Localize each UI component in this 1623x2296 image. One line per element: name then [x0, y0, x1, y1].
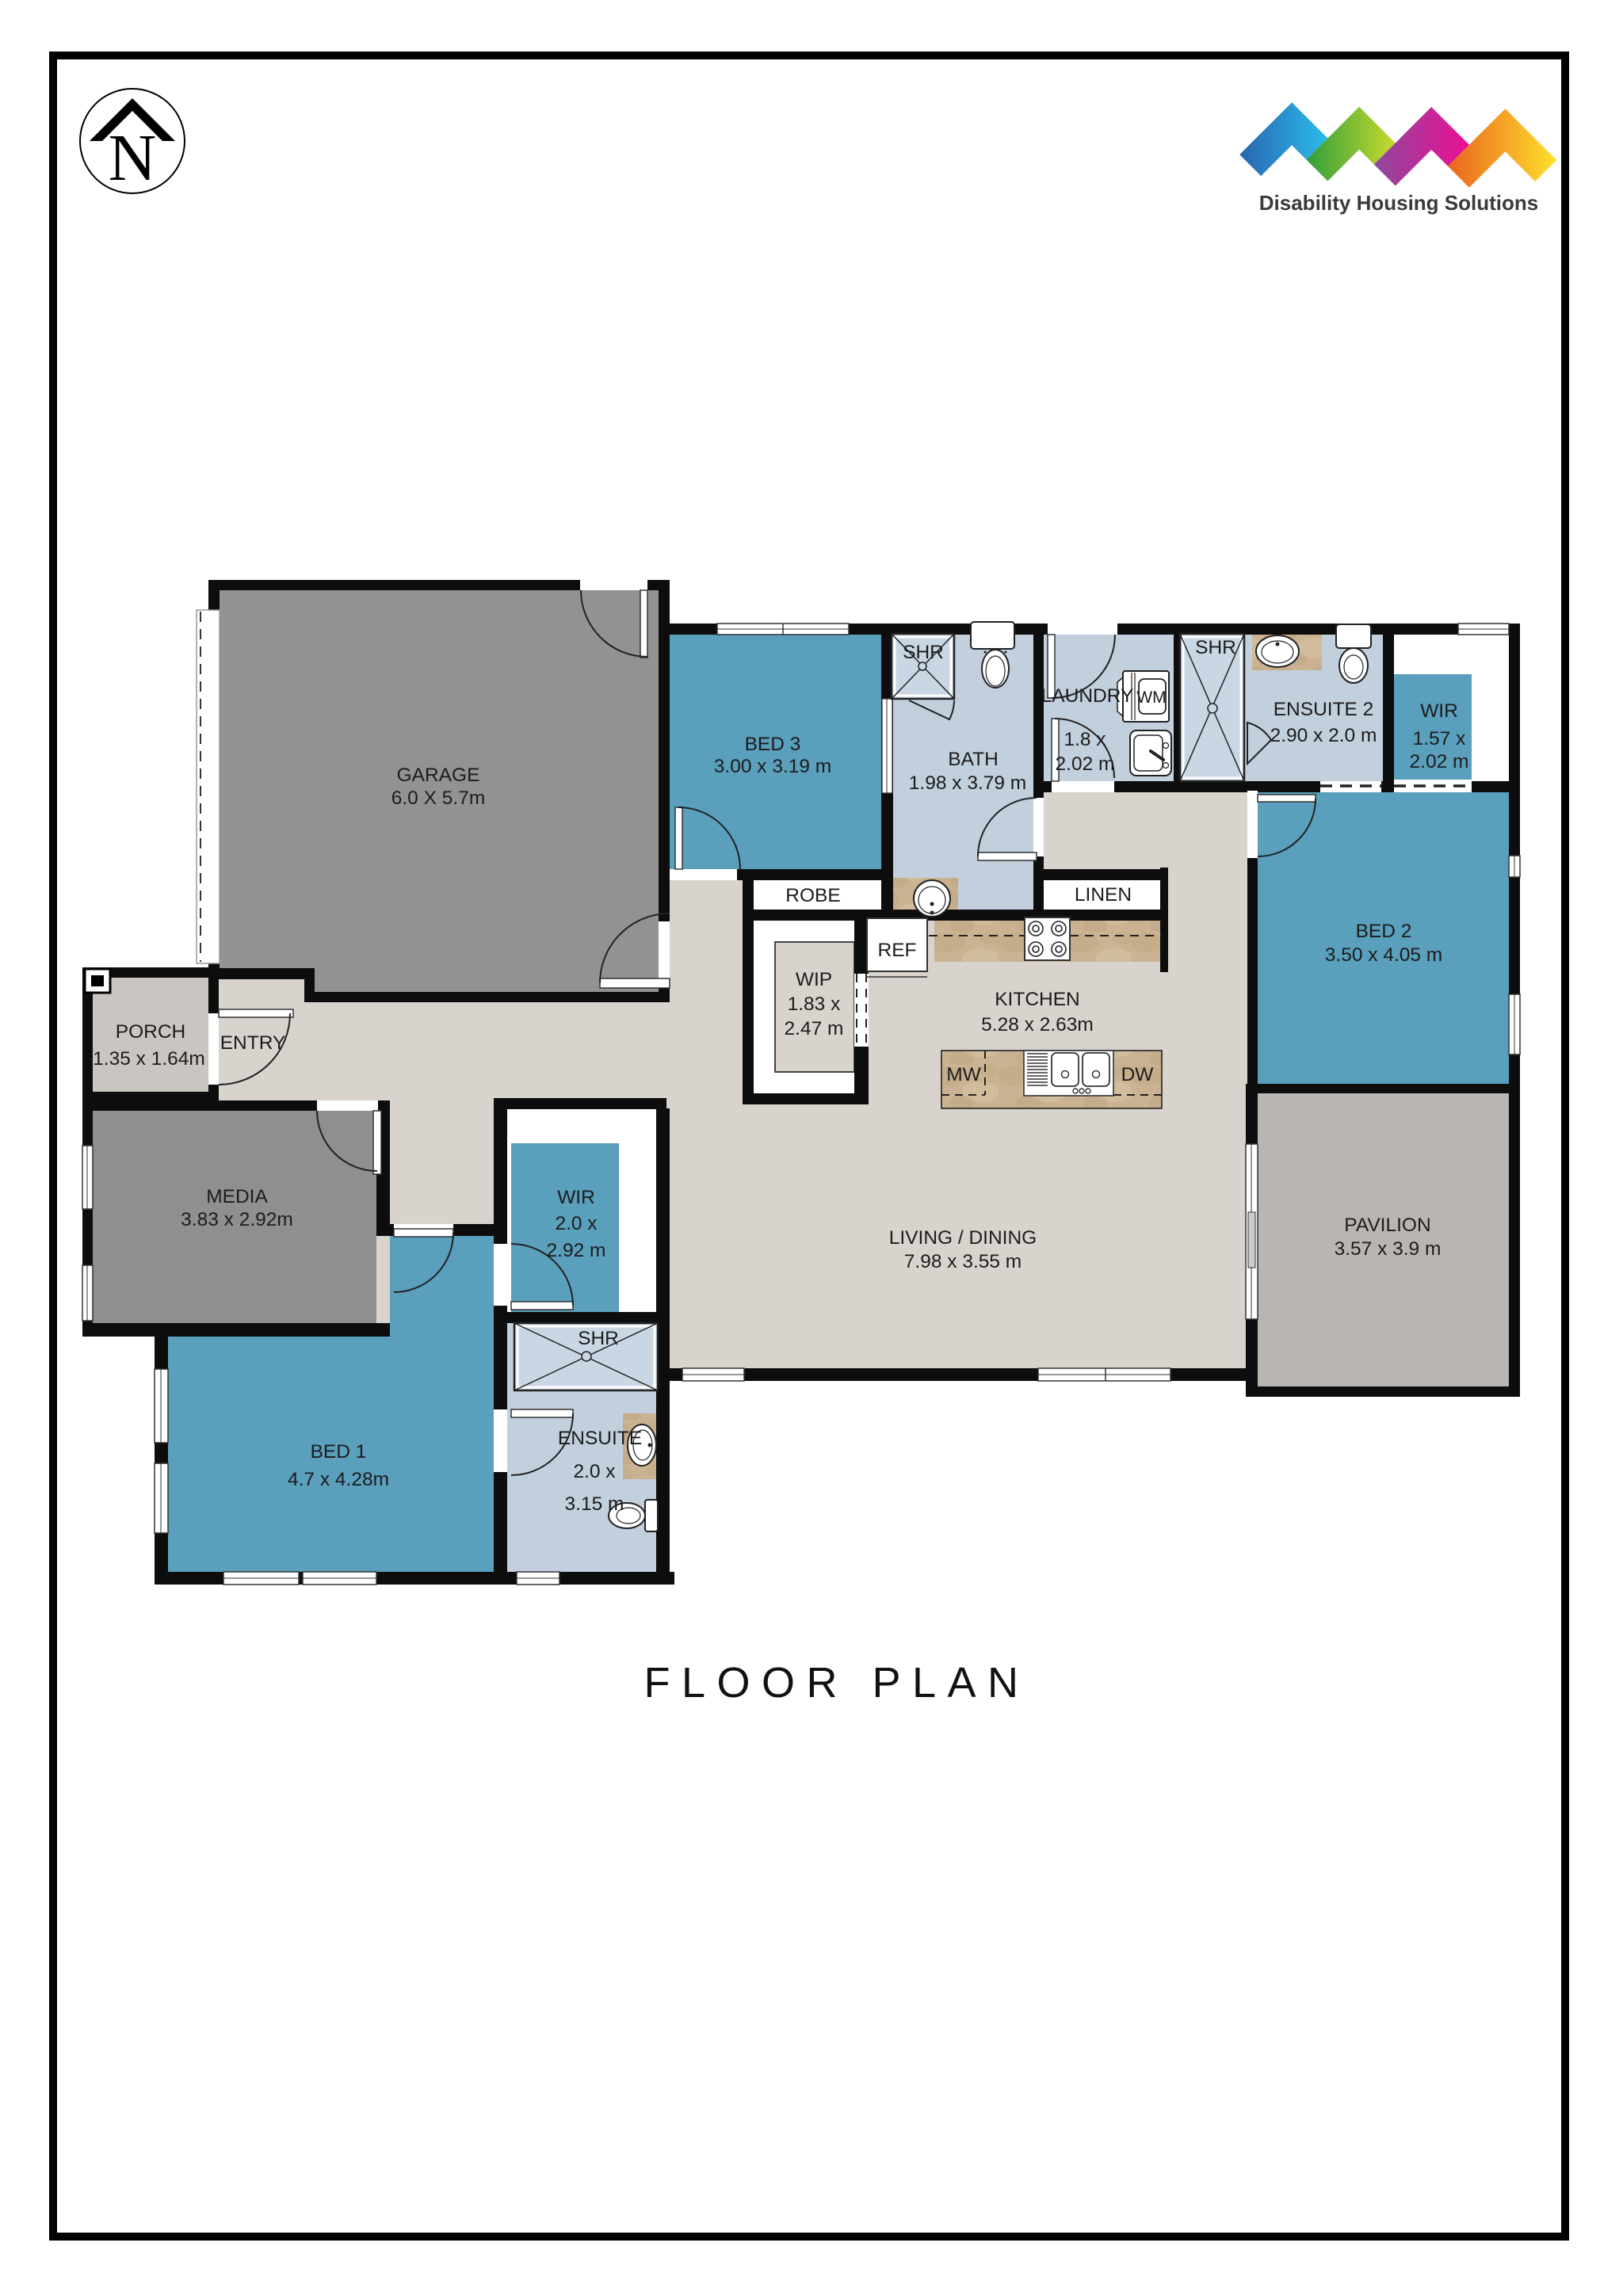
svg-text:BED 1: BED 1: [311, 1441, 367, 1463]
svg-text:2.90 x 2.0 m: 2.90 x 2.0 m: [1270, 725, 1377, 746]
svg-text:3.00 x 3.19 m: 3.00 x 3.19 m: [714, 756, 831, 777]
svg-text:N: N: [109, 121, 157, 195]
svg-text:KITCHEN: KITCHEN: [995, 989, 1080, 1010]
svg-text:SHR: SHR: [1195, 637, 1236, 658]
svg-text:WM: WM: [1136, 688, 1166, 707]
svg-text:7.98 x 3.55 m: 7.98 x 3.55 m: [904, 1251, 1022, 1272]
svg-text:BED 2: BED 2: [1356, 921, 1412, 942]
svg-text:Disability Housing Solutions: Disability Housing Solutions: [1259, 191, 1538, 215]
svg-text:1.35 x 1.64m: 1.35 x 1.64m: [93, 1048, 205, 1070]
svg-text:2.92 m: 2.92 m: [547, 1240, 606, 1261]
svg-text:1.83 x: 1.83 x: [788, 994, 841, 1015]
svg-text:SHR: SHR: [578, 1328, 619, 1349]
svg-text:5.28 x 2.63m: 5.28 x 2.63m: [981, 1014, 1094, 1035]
svg-text:BED 3: BED 3: [745, 734, 801, 755]
svg-text:3.15 m: 3.15 m: [565, 1493, 624, 1515]
svg-text:LIVING / DINING: LIVING / DINING: [889, 1227, 1037, 1249]
svg-text:DW: DW: [1121, 1064, 1155, 1085]
svg-text:FLOOR PLAN: FLOOR PLAN: [643, 1659, 1029, 1707]
svg-text:WIR: WIR: [1420, 700, 1458, 722]
svg-text:4.7 x 4.28m: 4.7 x 4.28m: [288, 1469, 389, 1490]
svg-text:6.0 X 5.7m: 6.0 X 5.7m: [391, 788, 485, 809]
svg-text:2.0 x: 2.0 x: [555, 1213, 597, 1234]
svg-text:SHR: SHR: [903, 642, 944, 663]
svg-text:3.50 x 4.05 m: 3.50 x 4.05 m: [1325, 944, 1442, 966]
svg-text:3.83 x 2.92m: 3.83 x 2.92m: [181, 1209, 293, 1230]
svg-text:2.02 m: 2.02 m: [1410, 751, 1469, 772]
svg-text:BATH: BATH: [948, 749, 999, 770]
svg-text:2.47 m: 2.47 m: [785, 1018, 844, 1039]
svg-text:1.98 x 3.79 m: 1.98 x 3.79 m: [909, 772, 1026, 794]
svg-text:ENSUITE: ENSUITE: [558, 1428, 642, 1449]
svg-text:MEDIA: MEDIA: [206, 1186, 268, 1207]
svg-text:PORCH: PORCH: [116, 1021, 185, 1043]
svg-text:2.02 m: 2.02 m: [1056, 753, 1115, 775]
svg-text:GARAGE: GARAGE: [397, 765, 480, 786]
svg-text:3.57 x 3.9 m: 3.57 x 3.9 m: [1335, 1238, 1442, 1260]
svg-text:ENSUITE 2: ENSUITE 2: [1274, 699, 1374, 720]
svg-text:1.8 x: 1.8 x: [1064, 729, 1106, 750]
svg-text:WIP: WIP: [796, 969, 832, 990]
svg-text:WIR: WIR: [557, 1187, 595, 1208]
svg-text:REF: REF: [878, 940, 917, 961]
svg-text:LINEN: LINEN: [1075, 884, 1132, 906]
svg-text:PAVILION: PAVILION: [1344, 1215, 1430, 1236]
svg-text:MW: MW: [946, 1064, 981, 1085]
svg-text:LAUNDRY: LAUNDRY: [1041, 685, 1134, 707]
svg-text:ROBE: ROBE: [785, 885, 840, 906]
svg-text:1.57 x: 1.57 x: [1413, 728, 1466, 749]
svg-text:ENTRY: ENTRY: [220, 1032, 286, 1054]
svg-text:2.0 x: 2.0 x: [573, 1461, 615, 1482]
